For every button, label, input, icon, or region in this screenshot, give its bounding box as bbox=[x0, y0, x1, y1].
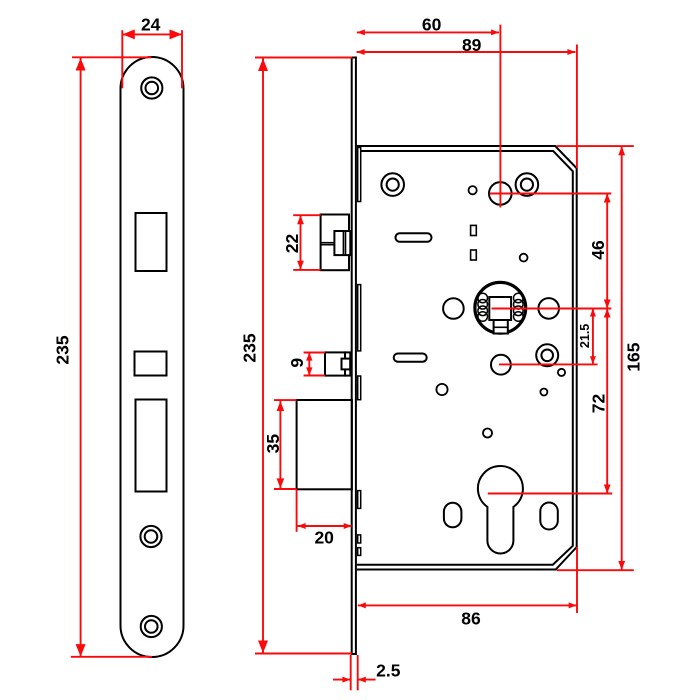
svg-text:24: 24 bbox=[141, 14, 161, 34]
svg-text:22: 22 bbox=[282, 234, 302, 254]
svg-text:235: 235 bbox=[240, 333, 260, 362]
svg-text:72: 72 bbox=[588, 394, 608, 414]
svg-text:89: 89 bbox=[462, 35, 482, 55]
svg-text:2.5: 2.5 bbox=[376, 660, 401, 680]
svg-text:60: 60 bbox=[422, 14, 442, 34]
svg-text:165: 165 bbox=[624, 342, 644, 371]
svg-text:21.5: 21.5 bbox=[578, 324, 592, 348]
svg-text:20: 20 bbox=[314, 528, 334, 548]
svg-text:235: 235 bbox=[53, 335, 73, 364]
svg-text:46: 46 bbox=[588, 240, 608, 260]
svg-text:86: 86 bbox=[461, 609, 481, 629]
svg-text:9: 9 bbox=[287, 358, 307, 368]
svg-text:35: 35 bbox=[263, 434, 283, 454]
